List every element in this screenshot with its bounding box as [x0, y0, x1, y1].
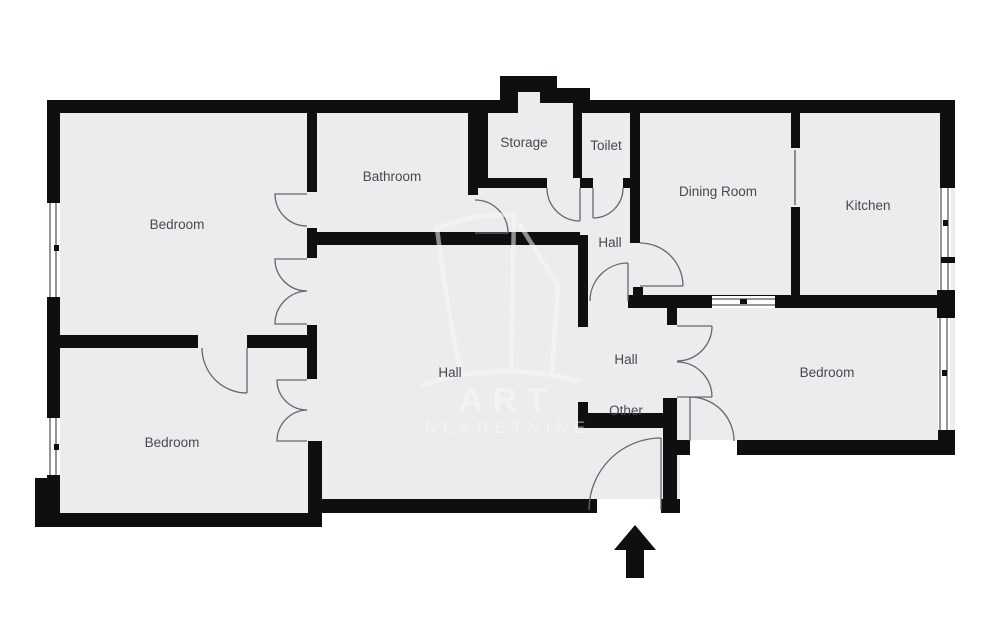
room-label-dining-room: Dining Room — [679, 184, 757, 199]
wall-segment — [307, 113, 317, 192]
window-bedroom-sw — [47, 418, 60, 475]
floorplan-svg: ART NEKRETNINE Bedroom Bedroom Bathroom … — [0, 0, 1000, 632]
wall-segment — [468, 113, 488, 178]
wall-segment — [938, 430, 955, 455]
room-label-toilet: Toilet — [590, 138, 622, 153]
room-label-bedroom-nw: Bedroom — [150, 217, 205, 232]
watermark-text-art: ART — [459, 381, 557, 418]
wall-segment — [317, 232, 580, 245]
window-bedroom-nw — [47, 203, 60, 297]
window-bedroom-e — [938, 318, 950, 430]
terrace-door-threshold — [690, 440, 737, 455]
wall-segment — [677, 440, 690, 455]
room-label-kitchen: Kitchen — [845, 198, 890, 213]
wall-segment — [667, 305, 677, 325]
wall-segment — [573, 103, 582, 178]
wall-segment — [630, 113, 640, 243]
watermark-text-nekretnine: NEKRETNINE — [425, 419, 591, 437]
wall-segment — [35, 478, 47, 527]
room-label-hall-upper: Hall — [598, 235, 621, 250]
wall-segment — [307, 228, 317, 258]
room-label-bedroom-e: Bedroom — [800, 365, 855, 380]
wall-segment — [47, 513, 322, 527]
entrance-threshold — [597, 499, 661, 513]
room-label-bathroom: Bathroom — [363, 169, 422, 184]
floor-notch — [518, 92, 540, 113]
wall-segment — [580, 178, 593, 188]
room-label-storage: Storage — [500, 135, 547, 150]
wall-segment — [478, 178, 547, 188]
wall-segment — [940, 100, 955, 188]
wall-segment — [308, 441, 322, 527]
window-dining-bedroom — [707, 296, 780, 308]
wall-segment — [60, 335, 198, 348]
room-label-other: Other — [609, 403, 643, 418]
wall-segment — [247, 335, 307, 348]
wall-segment — [737, 440, 938, 455]
floorplan-image: ART NEKRETNINE Bedroom Bedroom Bathroom … — [0, 0, 1000, 632]
wall-segment — [307, 325, 317, 379]
room-label-hall-main: Hall — [438, 365, 461, 380]
room-label-bedroom-sw: Bedroom — [145, 435, 200, 450]
floor-notch — [540, 103, 573, 113]
wall-segment — [791, 207, 800, 296]
wall-segment — [322, 499, 597, 513]
wall-segment — [791, 113, 800, 148]
room-label-hall-east: Hall — [614, 352, 637, 367]
wall-segment — [468, 178, 478, 195]
wall-segment — [578, 235, 588, 327]
